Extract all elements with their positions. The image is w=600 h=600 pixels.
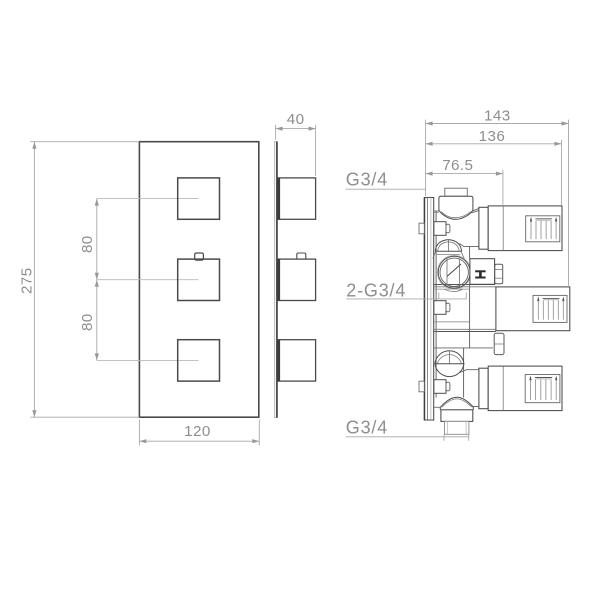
svg-text:40: 40 bbox=[287, 111, 305, 128]
svg-text:80: 80 bbox=[79, 235, 96, 253]
svg-text:G3/4: G3/4 bbox=[346, 170, 388, 190]
svg-text:76.5: 76.5 bbox=[442, 157, 473, 174]
svg-text:120: 120 bbox=[184, 423, 211, 440]
svg-text:143: 143 bbox=[484, 107, 511, 124]
svg-text:G3/4: G3/4 bbox=[346, 418, 388, 438]
svg-text:136: 136 bbox=[479, 128, 506, 145]
svg-text:80: 80 bbox=[79, 313, 96, 331]
svg-text:2-G3/4: 2-G3/4 bbox=[346, 281, 406, 301]
svg-text:275: 275 bbox=[19, 267, 36, 294]
